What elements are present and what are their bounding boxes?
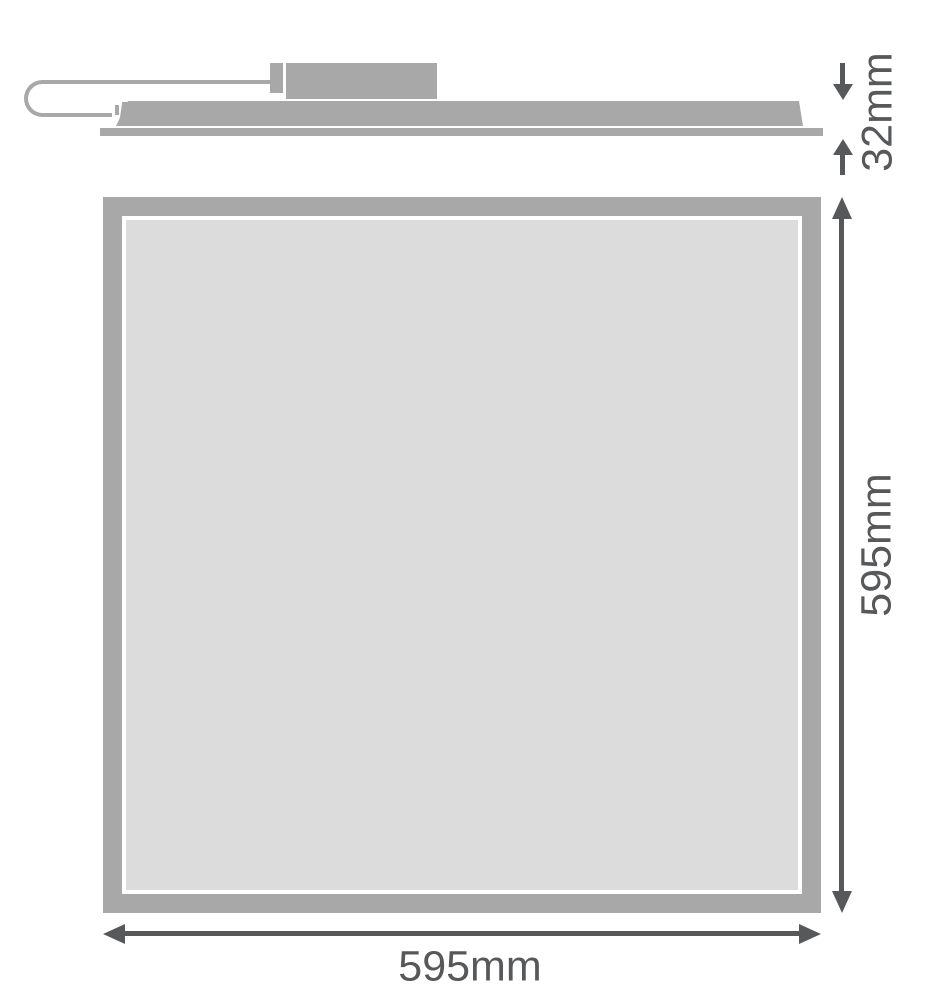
arrow-right-icon (799, 924, 821, 944)
dimension-line (840, 63, 845, 86)
dimension-line (840, 153, 845, 175)
arrow-down-icon (832, 891, 852, 913)
dimension-height-label: 595mm (856, 473, 899, 616)
dimension-width-label: 595mm (398, 946, 541, 989)
cable-connector-pin (115, 105, 119, 115)
arrow-left-icon (103, 924, 125, 944)
panel-frame-inner-gap (122, 216, 802, 894)
arrow-down-icon (833, 84, 853, 100)
driver-box (286, 63, 437, 99)
panel-body-profile (116, 101, 803, 126)
panel-diffuser (126, 220, 798, 890)
front-view-panel-frame (103, 197, 821, 913)
arrow-up-icon (832, 197, 852, 219)
dimension-line (839, 217, 844, 893)
dimension-thickness-label: 32mm (857, 52, 900, 171)
power-cable-loop (24, 80, 112, 117)
dimension-drawing-canvas: 32mm 595mm 595mm (0, 0, 944, 1000)
panel-frame-flange (100, 128, 823, 136)
dimension-line (123, 931, 801, 936)
driver-clamp (270, 63, 283, 93)
power-cable (106, 80, 271, 84)
